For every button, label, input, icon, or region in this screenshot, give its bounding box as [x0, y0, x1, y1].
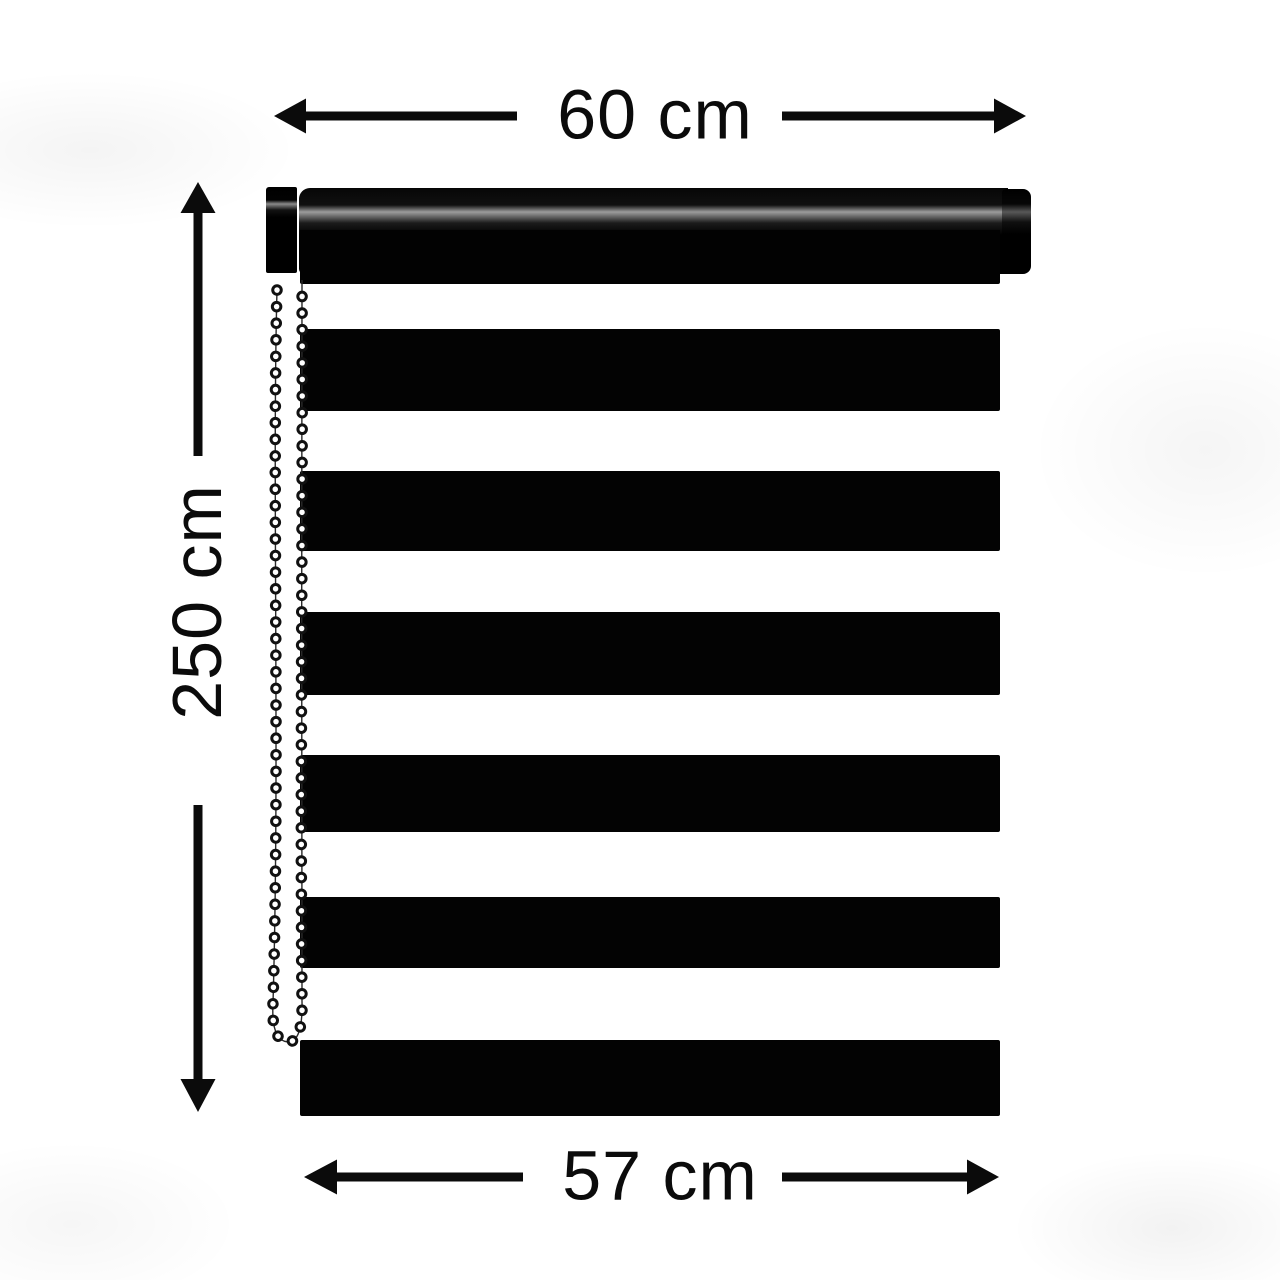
diagram-canvas: 60 cm 250 cm 57 cm [0, 0, 1280, 1280]
arrow-line [782, 1173, 968, 1182]
arrow-right-icon [994, 99, 1026, 134]
arrow-line [194, 805, 203, 1082]
arrow-line [301, 112, 517, 121]
width-bottom-label: 57 cm [562, 1141, 758, 1211]
width-top-label: 60 cm [557, 80, 753, 150]
arrow-line [334, 1173, 523, 1182]
arrow-down-icon [181, 1079, 216, 1112]
chain-beads-outline [273, 280, 302, 1042]
arrow-left-icon [274, 99, 306, 134]
arrow-line [782, 112, 995, 121]
arrow-left-icon [304, 1160, 337, 1195]
arrow-line [194, 209, 203, 456]
arrow-up-icon [181, 182, 216, 213]
arrow-right-icon [967, 1160, 999, 1195]
control-chain [273, 280, 302, 1042]
height-left-label: 250 cm [162, 484, 232, 720]
